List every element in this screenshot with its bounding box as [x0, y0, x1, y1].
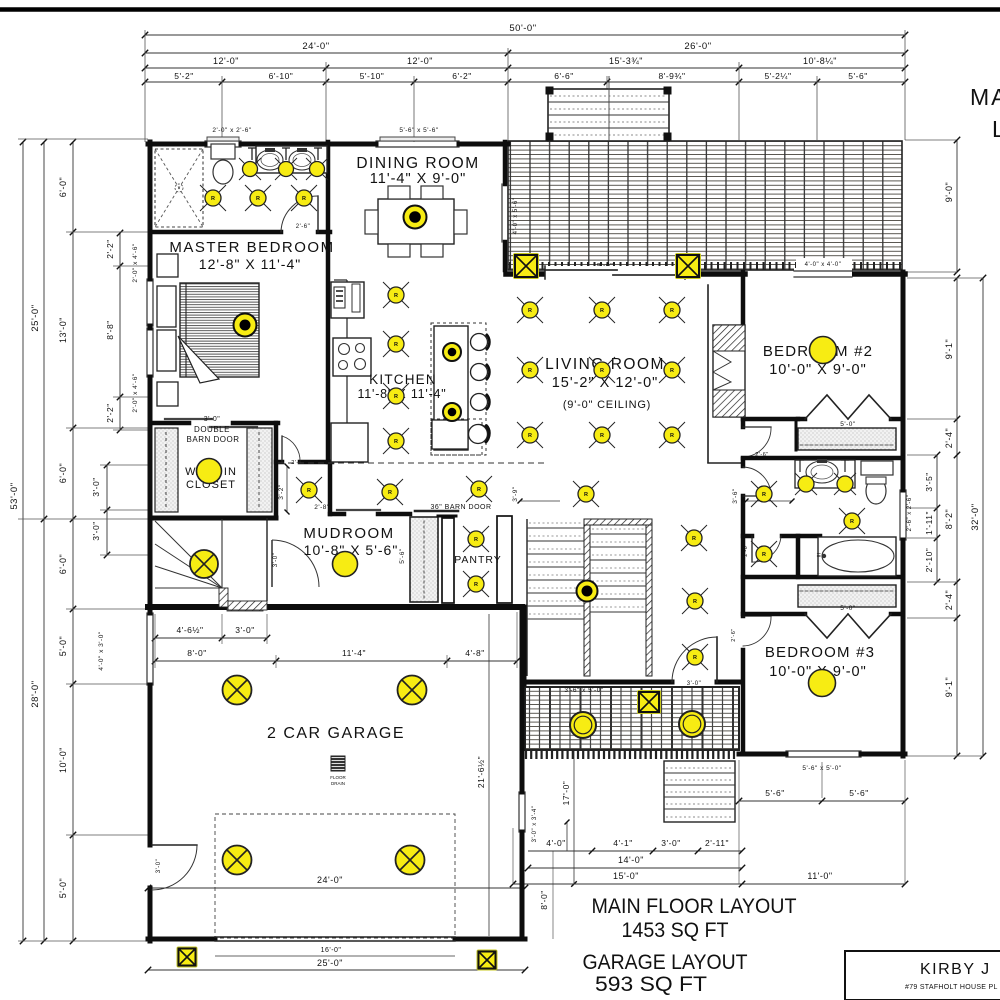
svg-text:25'-0": 25'-0" — [317, 958, 343, 968]
svg-text:6'-0": 6'-0" — [58, 463, 68, 483]
svg-text:BARN DOOR: BARN DOOR — [187, 435, 240, 444]
svg-text:11'-4" X 9'-0": 11'-4" X 9'-0" — [370, 171, 466, 187]
svg-text:3'-6": 3'-6" — [732, 488, 739, 504]
svg-text:3'-0": 3'-0" — [687, 681, 701, 687]
svg-text:DRAIN: DRAIN — [331, 781, 345, 786]
svg-text:R: R — [388, 490, 392, 496]
svg-text:(9'-0" CEILING): (9'-0" CEILING) — [563, 399, 651, 411]
svg-text:13'-0": 13'-0" — [58, 317, 68, 343]
svg-text:3'-0": 3'-0" — [91, 521, 101, 540]
svg-text:10'-8¼": 10'-8¼" — [803, 56, 837, 66]
svg-text:5'-0": 5'-0" — [840, 605, 856, 612]
svg-text:15'-3¾": 15'-3¾" — [609, 56, 643, 66]
svg-text:2'-8": 2'-8" — [314, 504, 330, 511]
svg-text:3'-0": 3'-0" — [235, 625, 254, 635]
svg-text:5'-6": 5'-6" — [848, 71, 867, 81]
svg-text:2'-10": 2'-10" — [924, 548, 934, 573]
svg-text:11'-0": 11'-0" — [807, 871, 832, 881]
svg-text:25'-0": 25'-0" — [30, 304, 41, 331]
svg-text:1453 SQ FT: 1453 SQ FT — [622, 919, 729, 942]
svg-text:8'-0": 8'-0" — [539, 890, 549, 909]
svg-text:5'-2": 5'-2" — [174, 71, 193, 81]
svg-text:R: R — [302, 196, 306, 202]
svg-text:1'-11": 1'-11" — [924, 511, 934, 535]
svg-text:4'-6½": 4'-6½" — [176, 625, 203, 635]
svg-text:5'-0": 5'-0" — [58, 878, 68, 898]
svg-text:4'-0" x 4'-0": 4'-0" x 4'-0" — [805, 262, 842, 268]
svg-text:4'-0" x 3'-0": 4'-0" x 3'-0" — [98, 631, 105, 670]
svg-text:17'-0": 17'-0" — [561, 781, 571, 806]
svg-text:12'-8" X 11'-4": 12'-8" X 11'-4" — [199, 256, 301, 272]
svg-text:10'-0" X 9'-0": 10'-0" X 9'-0" — [769, 362, 867, 378]
svg-text:KIRBY J: KIRBY J — [920, 961, 991, 978]
svg-text:2'-0" x 4'-6": 2'-0" x 4'-6" — [132, 373, 139, 412]
svg-text:BEDROOM #3: BEDROOM #3 — [765, 644, 875, 661]
svg-text:15'-0": 15'-0" — [613, 871, 639, 881]
svg-text:6'-2": 6'-2" — [452, 71, 471, 81]
svg-text:R: R — [256, 196, 260, 202]
svg-text:593 SQ FT: 593 SQ FT — [595, 973, 707, 996]
svg-text:PANTRY: PANTRY — [454, 554, 502, 566]
svg-text:3'-0": 3'-0" — [661, 838, 680, 848]
svg-text:9'-0": 9'-0" — [944, 182, 954, 202]
svg-text:R: R — [474, 537, 478, 543]
svg-text:DINING ROOM: DINING ROOM — [356, 155, 479, 172]
svg-text:R: R — [474, 582, 478, 588]
svg-text:#79 STAFHOLT HOUSE PL: #79 STAFHOLT HOUSE PL — [905, 984, 998, 991]
svg-text:12'-0": 12'-0" — [407, 56, 433, 66]
svg-text:R: R — [528, 368, 532, 374]
svg-text:9'-1": 9'-1" — [944, 339, 954, 359]
svg-text:MAIN FLOOR LAYOUT: MAIN FLOOR LAYOUT — [592, 895, 797, 918]
svg-text:50'-0": 50'-0" — [509, 23, 536, 34]
svg-text:R: R — [600, 308, 604, 314]
svg-text:3'-0": 3'-0" — [204, 416, 220, 423]
svg-text:DOUBLE: DOUBLE — [194, 425, 230, 434]
svg-text:53'-0": 53'-0" — [9, 482, 20, 509]
svg-text:6'-0": 6'-0" — [58, 554, 68, 574]
svg-text:6'-10": 6'-10" — [269, 71, 294, 81]
svg-text:2'-0": 2'-0" — [743, 543, 749, 556]
svg-text:12'-0": 12'-0" — [213, 56, 239, 66]
svg-text:2'-4": 2'-4" — [944, 590, 954, 610]
svg-text:R: R — [211, 196, 215, 202]
svg-text:R: R — [394, 394, 398, 400]
svg-text:R: R — [693, 599, 697, 605]
svg-text:5'-6" x 5'-6": 5'-6" x 5'-6" — [399, 127, 438, 134]
svg-text:2'-6": 2'-6" — [731, 628, 737, 641]
svg-text:28'-0": 28'-0" — [30, 680, 41, 707]
svg-text:8'-8": 8'-8" — [105, 320, 115, 339]
svg-text:☰: ☰ — [817, 553, 822, 559]
svg-text:2'-11": 2'-11" — [705, 838, 729, 848]
svg-text:4'-8": 4'-8" — [465, 648, 484, 658]
svg-text:KITCHEN: KITCHEN — [369, 372, 437, 387]
svg-text:R: R — [670, 308, 674, 314]
svg-text:3'-2": 3'-2" — [278, 484, 285, 500]
svg-text:4'-1": 4'-1" — [613, 838, 632, 848]
svg-text:3'-0": 3'-0" — [273, 553, 279, 567]
svg-text:R: R — [307, 488, 311, 494]
svg-text:R: R — [762, 492, 766, 498]
svg-text:21'-6½": 21'-6½" — [476, 756, 486, 788]
svg-text:2'-6" x 2'-6": 2'-6" x 2'-6" — [907, 495, 913, 532]
svg-text:5'-0": 5'-0" — [840, 421, 856, 428]
svg-text:3'-6" x 5'-0": 3'-6" x 5'-0" — [564, 687, 603, 694]
svg-text:R: R — [693, 655, 697, 661]
svg-text:5'-6": 5'-6" — [849, 788, 868, 798]
svg-text:R: R — [394, 342, 398, 348]
svg-text:R: R — [762, 552, 766, 558]
svg-text:10'-0": 10'-0" — [58, 747, 68, 773]
svg-text:R: R — [600, 433, 604, 439]
svg-text:2'-0" x 4'-6": 2'-0" x 4'-6" — [132, 243, 139, 282]
svg-text:R: R — [692, 536, 696, 542]
svg-text:MUDROOM: MUDROOM — [303, 525, 394, 542]
svg-text:2 CAR GARAGE: 2 CAR GARAGE — [267, 725, 405, 742]
svg-text:4'-0" x 5'-6": 4'-0" x 5'-6" — [513, 198, 519, 235]
svg-text:4'-0": 4'-0" — [546, 838, 565, 848]
svg-text:8'-0": 8'-0" — [187, 648, 206, 658]
svg-text:5'-6": 5'-6" — [765, 788, 784, 798]
svg-text:24'-0": 24'-0" — [302, 41, 329, 52]
svg-text:2'-4": 2'-4" — [944, 428, 954, 448]
svg-text:5'-0": 5'-0" — [58, 636, 68, 656]
svg-text:3'-0": 3'-0" — [91, 477, 101, 496]
svg-text:32'-0": 32'-0" — [970, 503, 981, 530]
svg-text:2'-2": 2'-2" — [105, 403, 115, 422]
svg-text:2'-0" x 2'-6": 2'-0" x 2'-6" — [212, 127, 251, 134]
svg-text:5'-2¼": 5'-2¼" — [764, 71, 791, 81]
svg-text:14'-0": 14'-0" — [618, 855, 644, 865]
svg-text:11'-4": 11'-4" — [342, 648, 366, 658]
svg-text:2'-2": 2'-2" — [105, 239, 115, 258]
svg-text:R: R — [670, 368, 674, 374]
svg-text:GARAGE LAYOUT: GARAGE LAYOUT — [583, 951, 748, 974]
svg-text:R: R — [670, 433, 674, 439]
svg-text:6'-6": 6'-6" — [554, 71, 573, 81]
svg-text:R: R — [600, 368, 604, 374]
svg-text:R: R — [528, 433, 532, 439]
svg-text:R: R — [850, 519, 854, 525]
svg-text:MASTER BEDROOM: MASTER BEDROOM — [169, 239, 334, 256]
svg-text:5'-10": 5'-10" — [360, 71, 385, 81]
svg-text:MA: MA — [970, 84, 1000, 110]
svg-text:L: L — [992, 116, 1000, 142]
svg-text:24'-0": 24'-0" — [317, 875, 343, 885]
svg-text:3'-0" x 3'-4": 3'-0" x 3'-4" — [532, 806, 538, 843]
svg-text:36" BARN DOOR: 36" BARN DOOR — [430, 504, 491, 511]
svg-text:R: R — [394, 439, 398, 445]
svg-text:R: R — [528, 308, 532, 314]
svg-text:3'-5": 3'-5" — [924, 472, 934, 491]
svg-text:26'-0": 26'-0" — [684, 41, 711, 52]
svg-text:3'-9": 3'-9" — [512, 486, 519, 502]
svg-text:R: R — [394, 293, 398, 299]
svg-text:8'-9¾": 8'-9¾" — [658, 71, 685, 81]
svg-text:5'-6": 5'-6" — [399, 548, 406, 564]
svg-text:3'-0": 3'-0" — [156, 859, 162, 873]
svg-text:6'-0": 6'-0" — [58, 177, 68, 197]
svg-text:16'-0": 16'-0" — [321, 947, 342, 954]
svg-text:R: R — [477, 487, 481, 493]
svg-text:2'-6": 2'-6" — [296, 224, 310, 230]
svg-text:9'-1": 9'-1" — [944, 677, 954, 697]
svg-text:R: R — [584, 492, 588, 498]
svg-text:FLOOR: FLOOR — [330, 775, 346, 780]
svg-text:8'-2": 8'-2" — [944, 509, 954, 529]
